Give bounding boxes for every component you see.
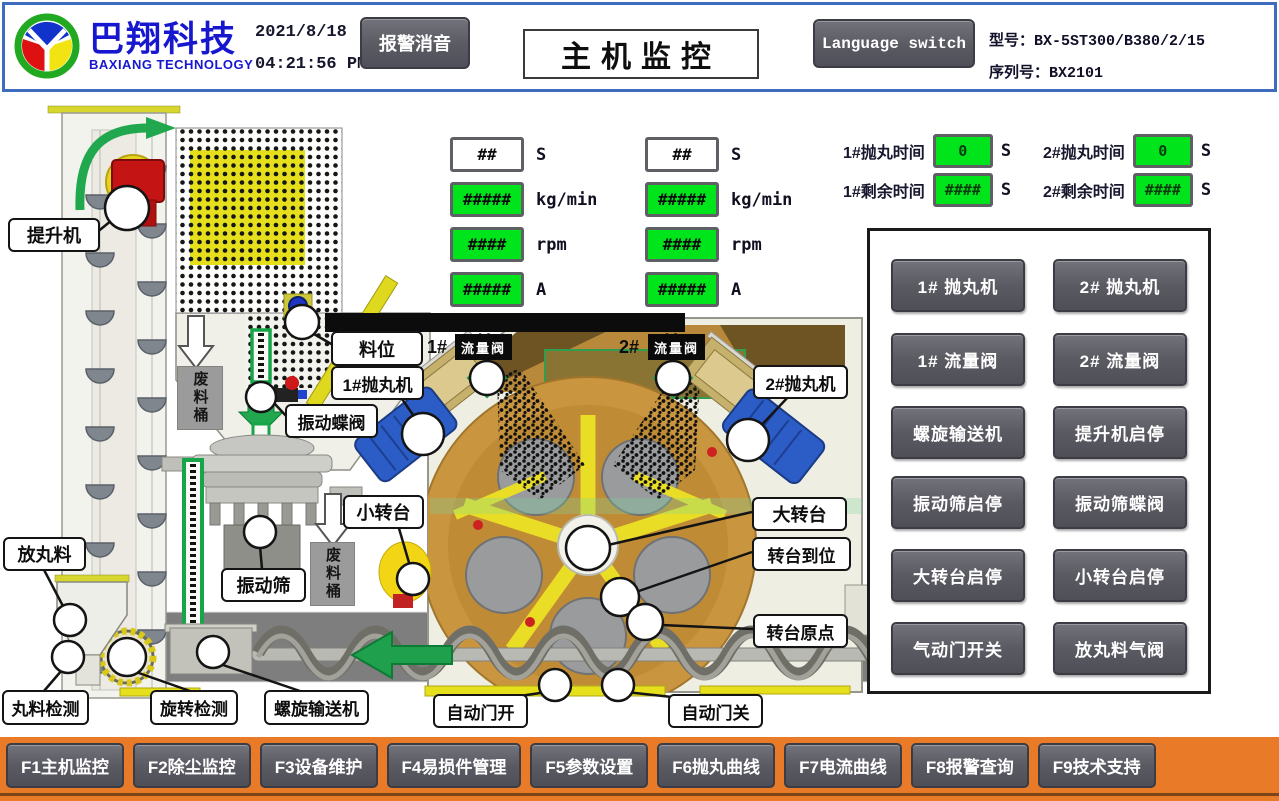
button-big-turntable[interactable]: 大转台启停 [891, 549, 1025, 602]
value-display: ##### [645, 182, 719, 217]
flow-valve1-number: 1# [427, 337, 447, 358]
model-number: 型号：BX-5ST300/B380/2/15 [989, 29, 1205, 50]
fkey-alarm-query[interactable]: F8报警查询 [911, 743, 1029, 788]
alarm-mute-button[interactable]: 报警消音 [360, 17, 470, 69]
value-display: 0 [1133, 134, 1193, 168]
flow-valve2-tag: 流量阀 [648, 334, 705, 360]
big-turntable-indicator [566, 526, 610, 570]
flow-valve1-tag: 流量阀 [455, 334, 512, 360]
button-sieve-valve[interactable]: 振动筛蝶阀 [1053, 476, 1187, 529]
button-blaster2[interactable]: 2# 抛丸机 [1053, 259, 1187, 312]
label-vibrating-sieve: 振动筛 [221, 568, 306, 602]
blaster2-speed-meter: #### rpm [645, 227, 762, 262]
fkey-maintenance[interactable]: F3设备维护 [260, 743, 378, 788]
label-rotation-detect: 旋转检测 [150, 690, 238, 725]
button-elevator[interactable]: 提升机启停 [1053, 406, 1187, 459]
label-door-open: 自动门开 [433, 694, 528, 728]
button-flow-valve1[interactable]: 1# 流量阀 [891, 333, 1025, 386]
brand-name-cn: 巴翔科技 [89, 11, 237, 62]
flow-valve1-indicator [470, 361, 504, 395]
page-title: 主机监控 [523, 29, 759, 79]
vibrating-valve-indicator [246, 382, 276, 412]
value-display: 0 [933, 134, 993, 168]
shot-detect-indicator [52, 641, 84, 673]
label-small-turntable: 小转台 [343, 495, 424, 529]
brand-name-en: BAXIANG TECHNOLOGY [89, 57, 253, 72]
language-switch-button[interactable]: Language switch [813, 19, 975, 68]
label-turntable-in-place: 转台到位 [752, 537, 851, 571]
time-display: 04:21:56 PM [255, 55, 367, 74]
button-small-turntable[interactable]: 小转台启停 [1053, 549, 1187, 602]
value-display: #### [645, 227, 719, 262]
label-vibrating-valve: 振动蝶阀 [285, 404, 378, 438]
fkey-current-curve[interactable]: F7电流曲线 [784, 743, 902, 788]
blaster2-indicator [727, 419, 769, 461]
label-elevator: 提升机 [8, 218, 100, 252]
label-shot-release: 放丸料 [3, 537, 86, 571]
blaster2-time-meter: ## S [645, 137, 741, 172]
button-sieve-start[interactable]: 振动筛启停 [891, 476, 1025, 529]
serial-number: 序列号：BX2101 [989, 61, 1103, 82]
fkey-blast-curve[interactable]: F6抛丸曲线 [657, 743, 775, 788]
control-panel: 1# 抛丸机 2# 抛丸机 1# 流量阀 2# 流量阀 螺旋输送机 提升机启停 … [867, 228, 1211, 694]
label-waste-bin-1: 废料桶 [177, 366, 223, 430]
label-blaster2: 2#抛丸机 [753, 365, 848, 399]
value-display: ## [645, 137, 719, 172]
brand-logo-icon [14, 13, 80, 79]
value-display: #### [933, 173, 993, 207]
header: 巴翔科技 BAXIANG TECHNOLOGY 2021/8/18 04:21:… [2, 2, 1277, 92]
blaster2-current-meter: ##### A [645, 272, 741, 307]
label-big-turntable: 大转台 [752, 497, 847, 531]
fkey-parameters[interactable]: F5参数设置 [530, 743, 648, 788]
value-display: #### [450, 227, 524, 262]
value-display: ## [450, 137, 524, 172]
blaster1-flow-meter: ##### kg/min [450, 182, 597, 217]
label-screw-conveyor: 螺旋输送机 [264, 690, 369, 725]
material-level-indicator [285, 305, 319, 339]
label-waste-bin-2: 废料桶 [310, 542, 355, 606]
value-display: ##### [450, 182, 524, 217]
small-turntable-indicator [397, 563, 429, 595]
fkey-tech-support[interactable]: F9技术支持 [1038, 743, 1156, 788]
blast1-time-row: 1#抛丸时间 0 S [843, 134, 1011, 168]
hmi-main-monitor-screen: 巴翔科技 BAXIANG TECHNOLOGY 2021/8/18 04:21:… [0, 0, 1279, 801]
fkey-wear-parts[interactable]: F4易损件管理 [387, 743, 522, 788]
screw-conveyor-indicator [197, 636, 229, 668]
rotation-detect-indicator [108, 638, 146, 676]
button-blaster1[interactable]: 1# 抛丸机 [891, 259, 1025, 312]
label-material-level: 料位 [331, 331, 423, 366]
blaster2-flow-meter: ##### kg/min [645, 182, 792, 217]
fkey-main-monitor[interactable]: F1主机监控 [6, 743, 124, 788]
value-display: ##### [645, 272, 719, 307]
blaster1-time-meter: ## S [450, 137, 546, 172]
flow-valve2-indicator [656, 361, 690, 395]
turntable-origin-indicator [627, 604, 663, 640]
value-display: ##### [450, 272, 524, 307]
remain1-time-row: 1#剩余时间 #### S [843, 173, 1011, 207]
label-door-close: 自动门关 [668, 694, 763, 728]
blaster1-current-meter: ##### A [450, 272, 546, 307]
button-shot-air-valve[interactable]: 放丸料气阀 [1053, 622, 1187, 675]
blaster1-speed-meter: #### rpm [450, 227, 567, 262]
vibrating-sieve-indicator [244, 516, 276, 548]
button-pneumatic-door[interactable]: 气动门开关 [891, 622, 1025, 675]
door-open-indicator [539, 669, 571, 701]
blast2-time-row: 2#抛丸时间 0 S [1043, 134, 1211, 168]
shot-release-indicator [54, 604, 86, 636]
button-flow-valve2[interactable]: 2# 流量阀 [1053, 333, 1187, 386]
function-key-bar: F1主机监控 F2除尘监控 F3设备维护 F4易损件管理 F5参数设置 F6抛丸… [0, 737, 1279, 801]
label-blaster1: 1#抛丸机 [331, 366, 424, 400]
date-display: 2021/8/18 [255, 23, 347, 42]
label-shot-detect: 丸料检测 [2, 690, 89, 725]
value-display: #### [1133, 173, 1193, 207]
door-close-indicator [602, 669, 634, 701]
flow-valve2-number: 2# [619, 337, 639, 358]
elevator-indicator [105, 186, 149, 230]
label-turntable-origin: 转台原点 [753, 614, 848, 648]
fkey-dust-monitor[interactable]: F2除尘监控 [133, 743, 251, 788]
blaster1-indicator [402, 413, 444, 455]
remain2-time-row: 2#剩余时间 #### S [1043, 173, 1211, 207]
button-screw-conveyor[interactable]: 螺旋输送机 [891, 406, 1025, 459]
